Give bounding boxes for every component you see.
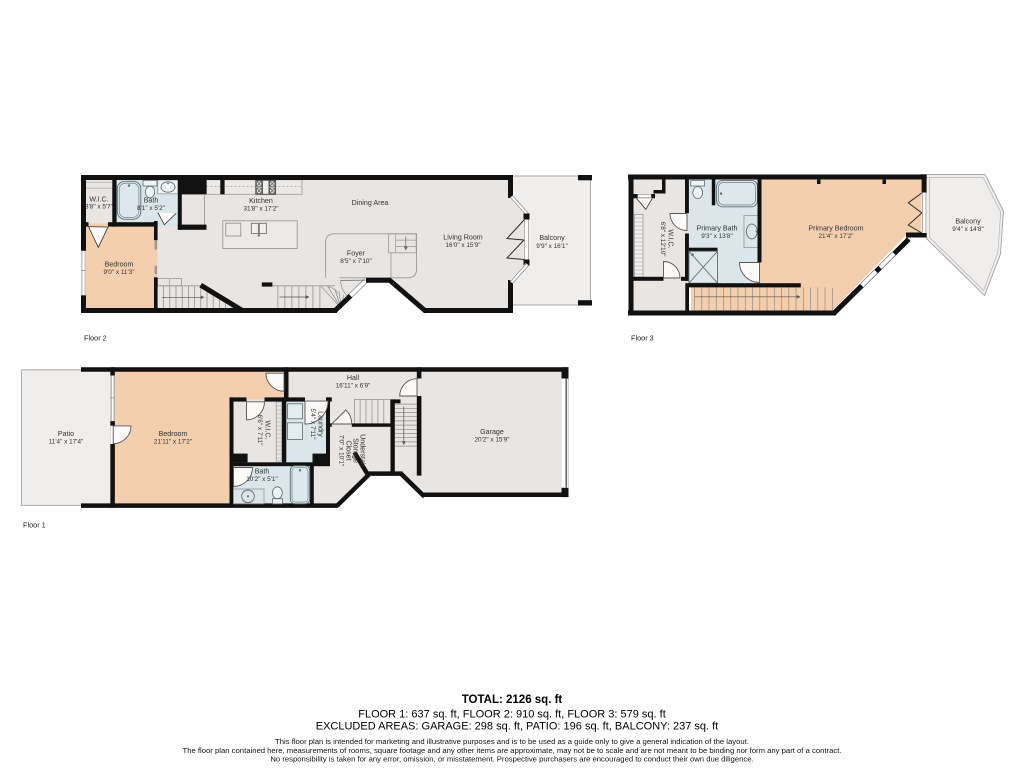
svg-text:No responsibility is taken for: No responsibility is taken for any error…	[270, 754, 753, 763]
svg-text:Primary Bath: Primary Bath	[697, 225, 738, 233]
svg-text:Bath: Bath	[144, 197, 159, 205]
svg-text:16'0" x 15'9": 16'0" x 15'9"	[445, 242, 480, 249]
svg-text:6'8" x 12'10": 6'8" x 12'10"	[659, 221, 666, 256]
svg-text:Floor 3: Floor 3	[631, 334, 654, 343]
svg-text:EXCLUDED AREAS: GARAGE: 298 sq: EXCLUDED AREAS: GARAGE: 298 sq. ft, PATI…	[316, 721, 718, 733]
svg-text:Closet: Closet	[345, 440, 353, 460]
svg-text:9'4" x 14'8": 9'4" x 14'8"	[952, 226, 984, 233]
svg-text:9'3" x 13'8": 9'3" x 13'8"	[701, 233, 733, 240]
svg-text:This floor plan is intended fo: This floor plan is intended for marketin…	[275, 737, 749, 746]
svg-text:W.I.C.: W.I.C.	[667, 229, 675, 248]
svg-text:8'1" x 5'2": 8'1" x 5'2"	[137, 205, 165, 212]
svg-text:FLOOR 1: 637 sq. ft, FLOOR 2:: FLOOR 1: 637 sq. ft, FLOOR 2: 910 sq. ft…	[358, 708, 666, 720]
svg-text:6'6" x 7'11": 6'6" x 7'11"	[256, 414, 263, 445]
svg-text:Laundry: Laundry	[317, 411, 325, 437]
svg-text:11'4" x 17'4": 11'4" x 17'4"	[49, 439, 84, 446]
svg-text:21'4" x 17'2": 21'4" x 17'2"	[818, 233, 853, 240]
svg-text:Bath: Bath	[255, 468, 270, 476]
svg-text:31'8" x 17'2": 31'8" x 17'2"	[243, 206, 278, 213]
svg-text:W.I.C.: W.I.C.	[264, 420, 272, 439]
svg-text:Primary Bedroom: Primary Bedroom	[808, 225, 863, 233]
svg-text:5'4" x 7'11": 5'4" x 7'11"	[309, 408, 316, 439]
svg-text:Balcony: Balcony	[955, 218, 981, 226]
svg-text:Garage: Garage	[480, 428, 504, 436]
svg-text:Balcony: Balcony	[539, 234, 565, 242]
svg-text:16'11" x 6'9": 16'11" x 6'9"	[336, 383, 371, 390]
svg-text:Kitchen: Kitchen	[249, 197, 273, 205]
svg-text:Dining Area: Dining Area	[352, 199, 389, 207]
svg-text:Bedroom: Bedroom	[159, 430, 188, 438]
svg-text:9'9" x 16'1": 9'9" x 16'1"	[536, 243, 568, 250]
svg-text:Hall: Hall	[347, 374, 360, 382]
svg-text:Floor 2: Floor 2	[84, 334, 107, 343]
svg-text:20'2" x 15'9": 20'2" x 15'9"	[474, 437, 509, 444]
svg-text:Patio: Patio	[58, 430, 74, 438]
svg-text:3'8" x 5'7": 3'8" x 5'7"	[85, 204, 113, 211]
svg-text:8'5" x 7'10": 8'5" x 7'10"	[340, 258, 372, 265]
svg-text:10'2" x 5'1": 10'2" x 5'1"	[246, 476, 278, 483]
svg-text:9'0" x 11'3": 9'0" x 11'3"	[103, 269, 134, 276]
svg-text:Floor 1: Floor 1	[23, 521, 46, 530]
svg-text:21'11" x 17'2": 21'11" x 17'2"	[154, 439, 192, 446]
svg-text:Living Room: Living Room	[443, 234, 483, 242]
svg-text:Foyer: Foyer	[347, 250, 366, 258]
svg-text:Bedroom: Bedroom	[105, 261, 134, 269]
svg-text:W.I.C.: W.I.C.	[89, 196, 108, 204]
svg-text:TOTAL: 2126 sq. ft: TOTAL: 2126 sq. ft	[462, 694, 563, 706]
svg-text:7'0" x 10'1": 7'0" x 10'1"	[338, 435, 345, 467]
